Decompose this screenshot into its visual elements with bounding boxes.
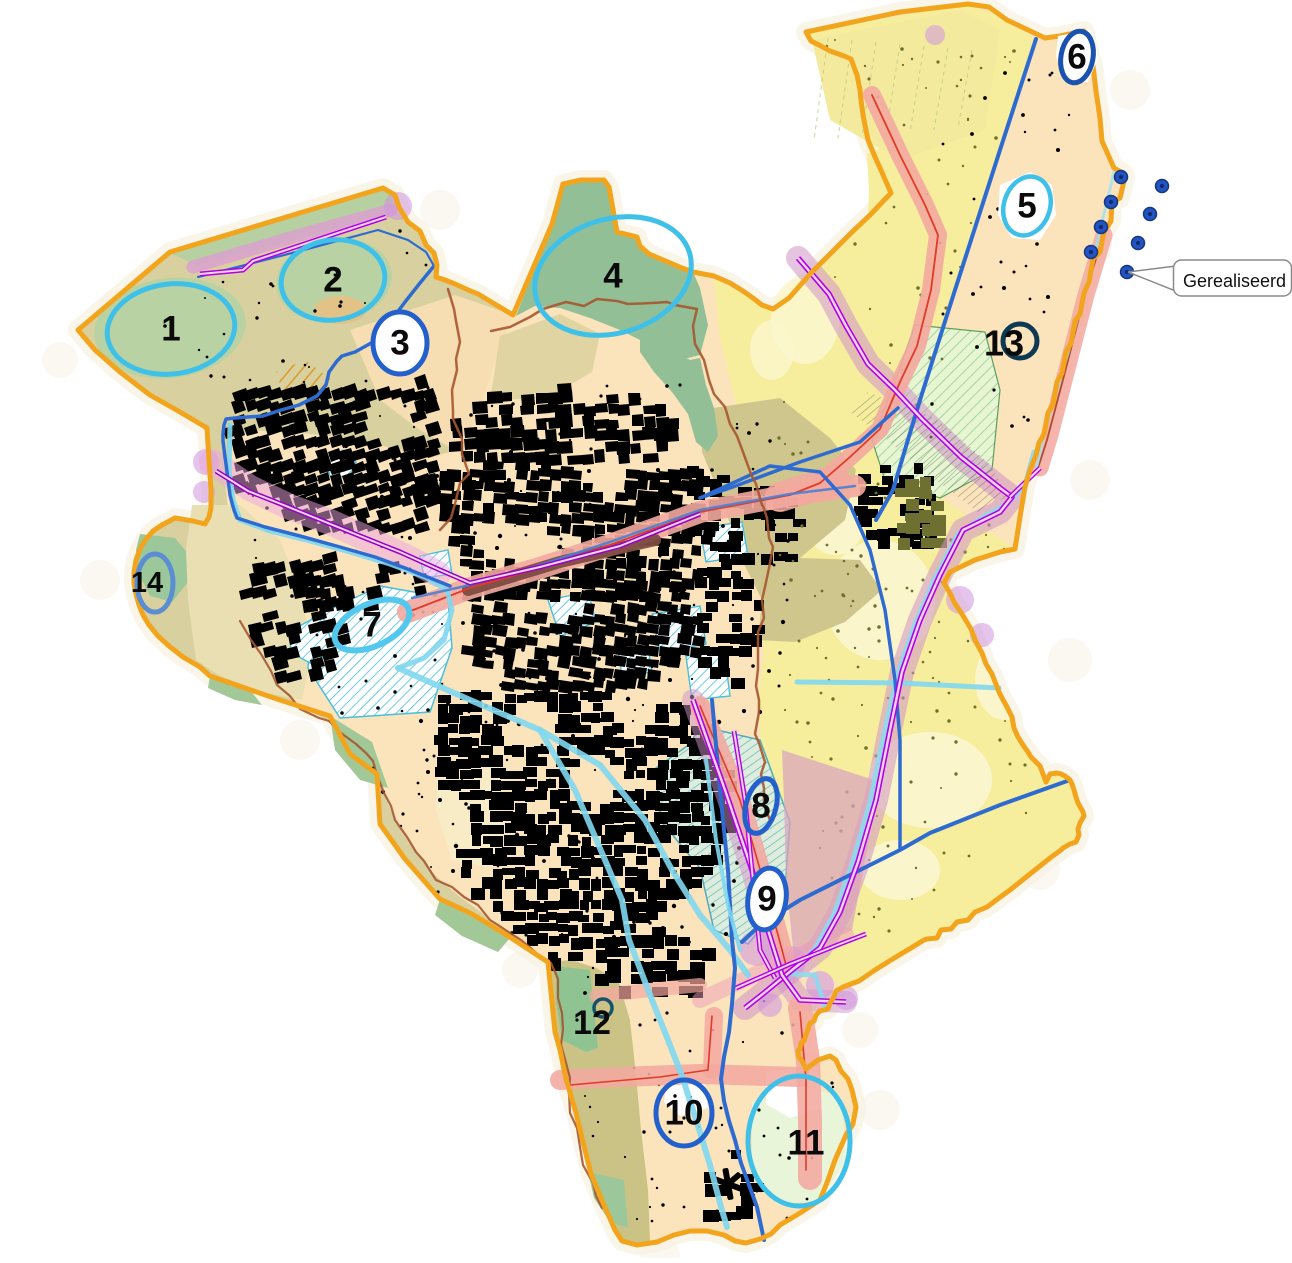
svg-text:3: 3	[390, 324, 409, 363]
svg-text:10: 10	[665, 1094, 704, 1133]
svg-text:7: 7	[362, 606, 381, 645]
svg-text:1: 1	[161, 310, 180, 349]
svg-text:13: 13	[984, 323, 1024, 364]
svg-text:11: 11	[788, 1124, 825, 1163]
svg-text:6: 6	[1067, 38, 1086, 77]
svg-text:2: 2	[323, 261, 342, 300]
svg-text:9: 9	[757, 880, 776, 919]
svg-text:12: 12	[573, 1004, 611, 1042]
svg-text:14: 14	[131, 567, 163, 599]
svg-text:8: 8	[751, 787, 770, 826]
svg-text:Gerealiseerd: Gerealiseerd	[1183, 271, 1286, 291]
svg-text:4: 4	[603, 257, 623, 296]
svg-text:5: 5	[1017, 187, 1036, 226]
